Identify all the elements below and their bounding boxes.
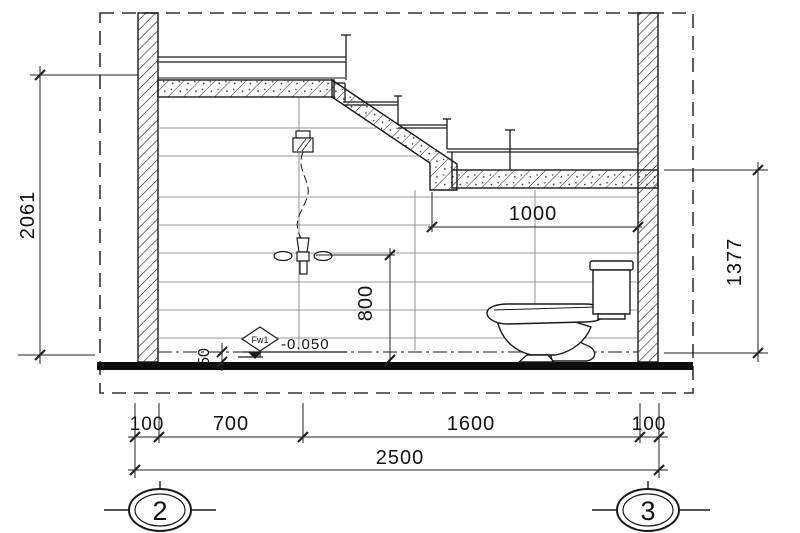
- dim-right-height: 1377: [664, 162, 768, 362]
- svg-text:100: 100: [130, 414, 165, 435]
- svg-text:50: 50: [196, 348, 213, 366]
- grid-bubble-2-label: 2: [152, 496, 167, 526]
- svg-text:2061: 2061: [17, 191, 39, 240]
- dim-overall-width: 2500: [128, 447, 668, 475]
- blueprint-canvas: Fw1 -0.050 2061 1377 1000 800: [0, 0, 800, 533]
- grid-bubble-3: 3: [592, 481, 710, 531]
- svg-text:1000: 1000: [509, 203, 558, 225]
- handrail: [158, 35, 351, 80]
- shower-head-icon: [296, 131, 310, 138]
- dim-floor-recess: 50: [196, 343, 227, 371]
- svg-text:800: 800: [355, 285, 377, 321]
- shower-fixture: [274, 131, 332, 274]
- grid-bubble-2: 2: [104, 481, 216, 531]
- toilet-tank: [593, 270, 630, 314]
- toilet-pedestal: [519, 355, 554, 362]
- svg-text:1600: 1600: [447, 413, 496, 435]
- drain-tag-label: Fw1: [251, 335, 268, 345]
- svg-text:100: 100: [632, 414, 667, 435]
- upper-floor-slab: [158, 80, 334, 97]
- svg-text:700: 700: [213, 413, 249, 435]
- floor-slab: [97, 362, 693, 370]
- svg-text:1377: 1377: [724, 238, 746, 287]
- grid-bubble-3-label: 3: [640, 496, 655, 526]
- shower-mixer: [274, 238, 332, 274]
- svg-text:2500: 2500: [376, 447, 425, 469]
- left-wall: [138, 13, 158, 362]
- toilet: [487, 261, 633, 362]
- stair-landing-slab: [452, 170, 658, 188]
- dim-left-height: 2061: [17, 66, 138, 364]
- boundary-outline: [100, 13, 693, 393]
- floor-level-label: -0.050: [281, 336, 330, 353]
- toilet-tank-lid: [590, 261, 633, 270]
- toilet-tank-base: [598, 314, 625, 319]
